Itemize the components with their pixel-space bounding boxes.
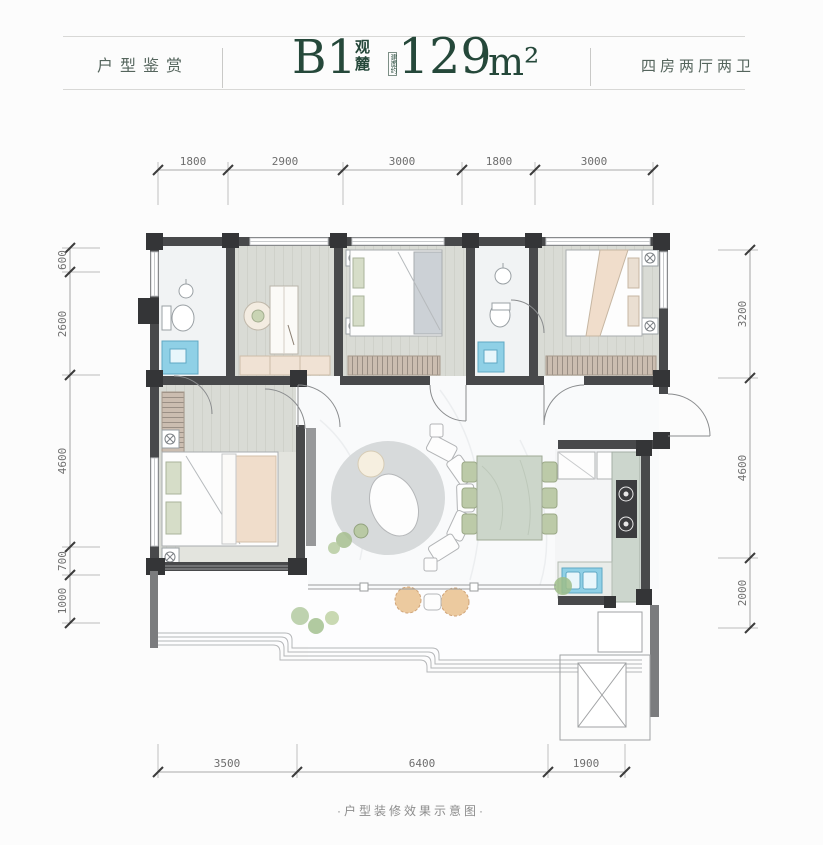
unit-name: 观麓	[353, 39, 369, 73]
dim-label: 6400	[409, 757, 436, 770]
dim-label: 1800	[180, 155, 207, 168]
wall-kitchen-bottom	[558, 596, 612, 605]
floorplan-page: { "header": { "left_label": "户型鉴赏", "uni…	[0, 0, 823, 845]
dim-bottom: 3500 6400 1900	[153, 744, 630, 778]
stove	[616, 480, 637, 538]
area-value: 129	[398, 28, 492, 86]
plant-icon	[328, 542, 340, 554]
layout-label: 四房两厅两卫	[598, 55, 798, 76]
dim-label: 1900	[573, 757, 600, 770]
wardrobe-2	[348, 356, 440, 375]
dim-label: 3500	[214, 757, 241, 770]
area-prefix: 建面约	[388, 52, 397, 76]
wall-master-right	[296, 425, 305, 571]
dim-label: 3000	[581, 155, 608, 168]
bed-runner	[222, 454, 236, 544]
shower-icon	[179, 284, 193, 298]
furniture-dining	[462, 456, 557, 540]
dim-label: 2600	[56, 311, 69, 338]
furniture-bedroom-2	[346, 250, 442, 375]
unit-code: B1	[292, 30, 356, 86]
blanket	[414, 252, 442, 334]
plant-icon	[554, 577, 572, 595]
pillow	[353, 296, 364, 326]
wall-elevator-right	[650, 605, 659, 717]
wicker-chair	[441, 588, 469, 616]
toilet-tank	[162, 306, 171, 330]
pillow	[166, 462, 181, 494]
ottoman	[358, 451, 384, 477]
plant-icon	[291, 607, 309, 625]
sink-icon	[495, 268, 511, 284]
door-entry	[668, 394, 710, 436]
study-cabinet	[240, 356, 330, 375]
dim-label: 4600	[736, 455, 749, 482]
footer-caption: ·户型装修效果示意图·	[0, 802, 823, 819]
unit-title-group: B1 观麓 建面约 129 m²	[250, 30, 580, 90]
dining-table	[477, 456, 542, 540]
tv-console	[306, 428, 316, 546]
header-divider-right	[590, 48, 591, 86]
dim-left: 600 2600 4600 700 1000	[56, 243, 100, 628]
dim-label: 2000	[736, 580, 749, 607]
pillow	[628, 296, 639, 326]
room-balcony-left	[158, 571, 308, 646]
balcony-parapet-left	[150, 571, 158, 648]
floorplan-svg: 1800 2900 3000 1800 3000 600 2600 4600 7…	[0, 100, 823, 800]
shaft-lobby	[598, 612, 642, 652]
dim-label: 3000	[389, 155, 416, 168]
dim-label: 700	[56, 551, 69, 571]
dim-label: 3200	[736, 301, 749, 328]
pillow	[353, 258, 364, 288]
pillow	[628, 258, 639, 288]
balcony-table	[424, 594, 441, 610]
dim-right: 3200 4600 2000	[718, 245, 758, 633]
wicker-chair	[395, 587, 421, 613]
blanket	[236, 456, 276, 542]
plant-icon	[325, 611, 339, 625]
dim-label: 600	[56, 250, 69, 270]
dim-label: 1800	[486, 155, 513, 168]
section-label: 户型鉴赏	[63, 52, 223, 76]
plant-icon	[308, 618, 324, 634]
toilet-icon	[172, 305, 194, 331]
wardrobe-3	[546, 356, 656, 375]
area-unit: m²	[488, 38, 539, 86]
dim-label: 2900	[272, 155, 299, 168]
side-table	[354, 524, 368, 538]
dim-label: 1000	[56, 588, 69, 615]
wall-kitchen-right	[641, 449, 650, 605]
dim-top: 1800 2900 3000 1800 3000	[153, 155, 658, 205]
pillow	[166, 502, 181, 534]
dim-label: 4600	[56, 448, 69, 475]
